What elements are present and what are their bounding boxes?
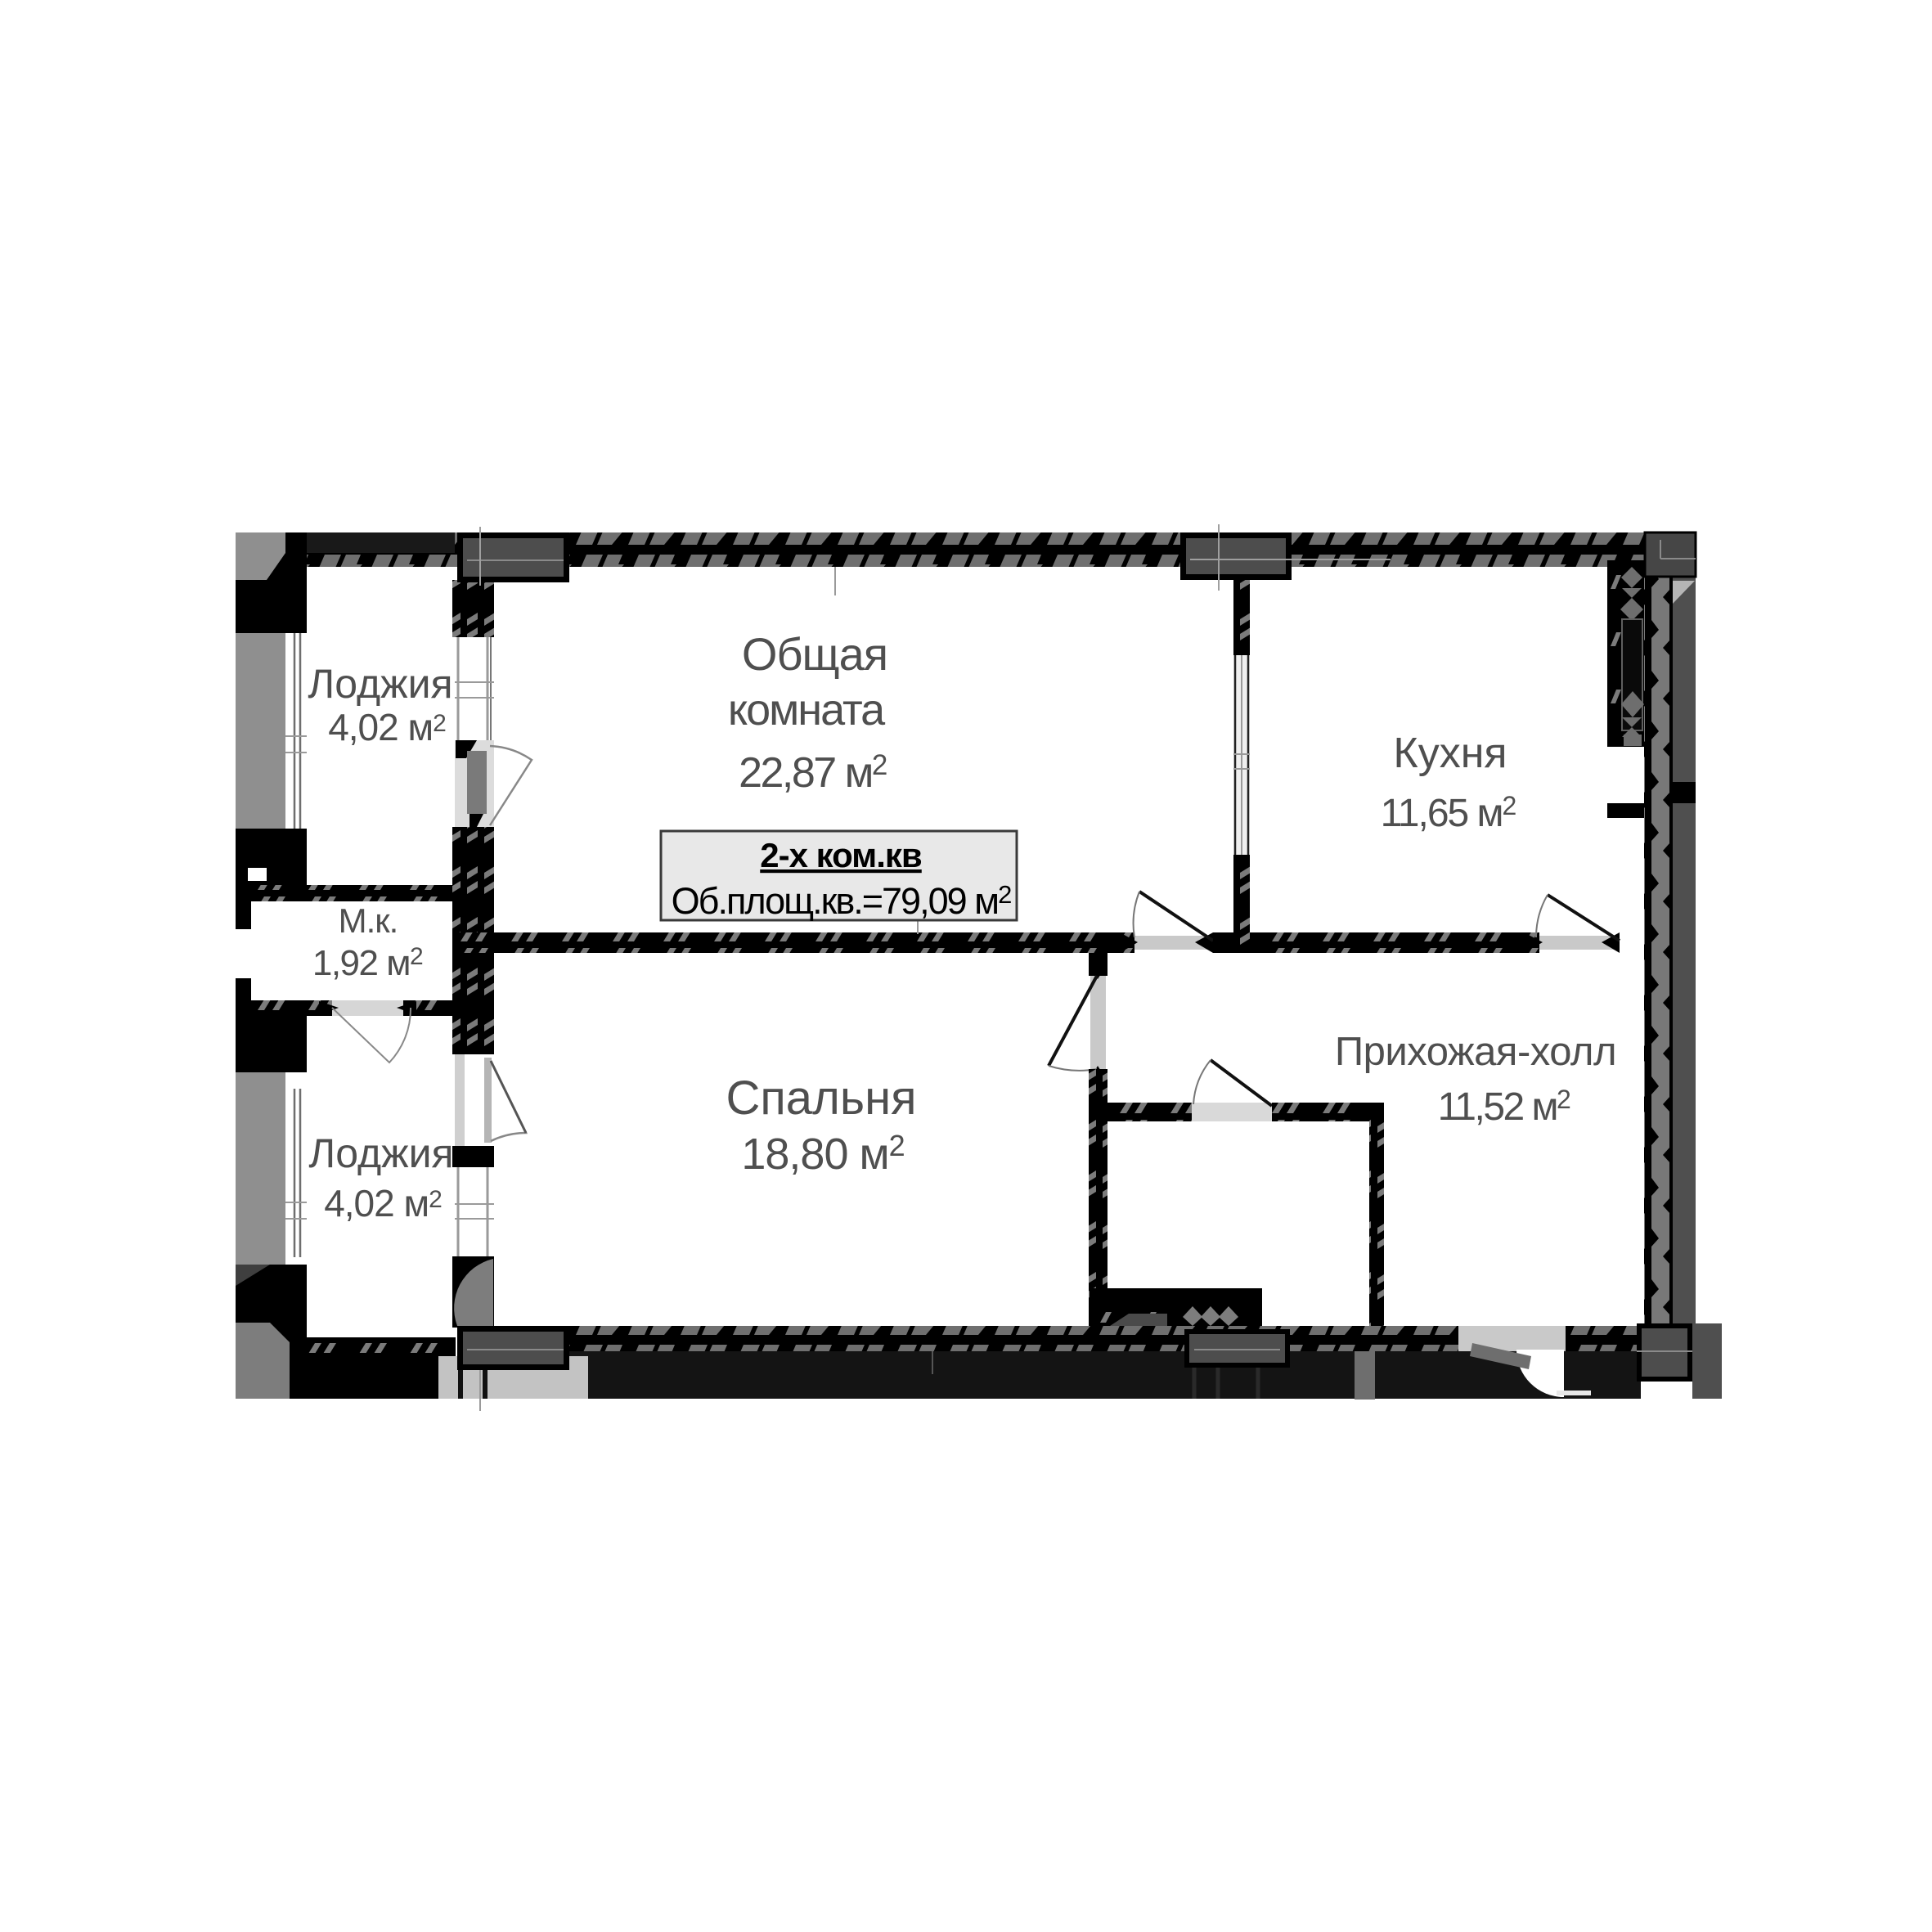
svg-text:1,92 м2: 1,92 м2 [312,943,423,983]
svg-text:4,02 м2: 4,02 м2 [328,706,446,748]
svg-text:Об.площ.кв.=79,09 м2: Об.площ.кв.=79,09 м2 [672,880,1011,922]
svg-text:11,65 м2: 11,65 м2 [1381,791,1516,835]
svg-text:2-х ком.кв: 2-х ком.кв [760,836,922,874]
svg-text:18,80 м2: 18,80 м2 [741,1129,904,1179]
svg-text:Общая: Общая [742,628,887,680]
svg-text:Кухня: Кухня [1393,730,1507,777]
svg-text:Лоджия: Лоджия [308,661,452,707]
svg-text:М.к.: М.к. [339,901,398,940]
svg-text:Лоджия: Лоджия [308,1130,453,1176]
svg-text:22,87 м2: 22,87 м2 [739,749,887,797]
svg-text:комната: комната [728,685,886,735]
svg-text:11,52 м2: 11,52 м2 [1438,1085,1570,1129]
svg-text:4,02 м2: 4,02 м2 [324,1182,442,1224]
svg-text:Прихожая-холл: Прихожая-холл [1335,1030,1616,1074]
svg-text:Спальня: Спальня [726,1072,916,1125]
